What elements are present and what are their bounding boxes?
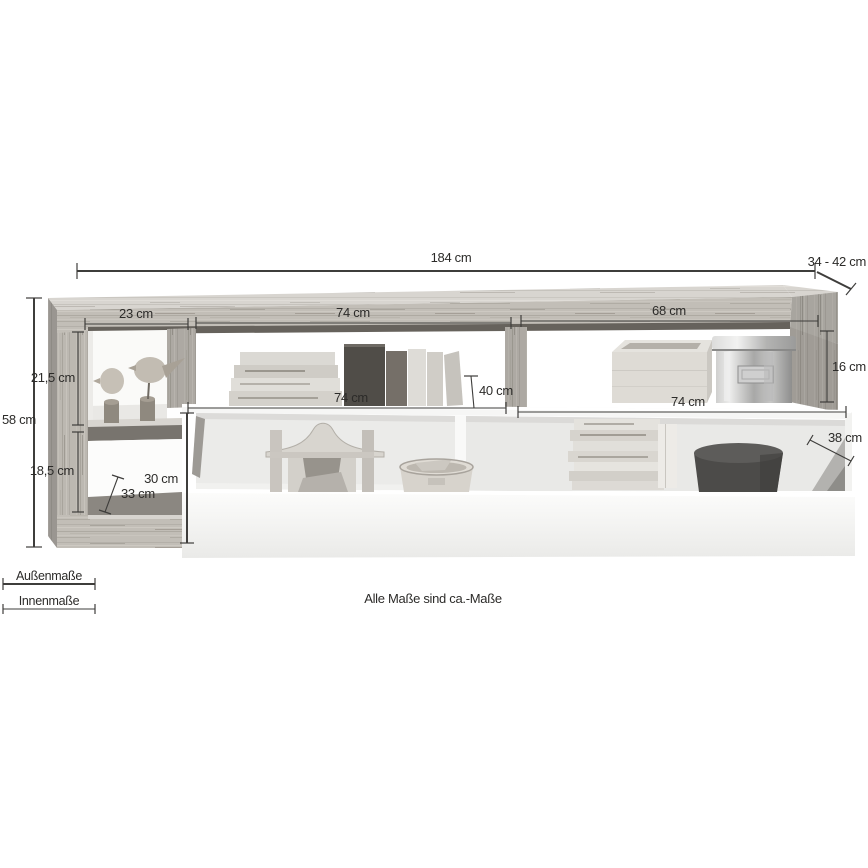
dim-depth-range: 34 - 42 cm bbox=[808, 254, 866, 295]
dim-label-upper-right-height: 16 cm bbox=[832, 359, 866, 374]
diagram-svg: 184 cm 34 - 42 cm 58 cm 23 cm 74 cm bbox=[0, 0, 868, 868]
dim-label-total-height: 58 cm bbox=[2, 412, 36, 427]
legend-inner-label: Innenmaße bbox=[19, 594, 80, 608]
dim-total-height: 58 cm bbox=[2, 298, 42, 547]
dim-label-right-depth: 38 cm bbox=[828, 430, 862, 445]
furniture-illustration bbox=[48, 285, 855, 558]
dim-label-upper-right-width: 68 cm bbox=[652, 303, 686, 318]
bottom-plank bbox=[57, 515, 182, 548]
dim-label-shelf-depth: 40 cm bbox=[479, 383, 513, 398]
dim-label-lowboard-right-width: 74 cm bbox=[671, 394, 705, 409]
decor-dark-planter bbox=[694, 443, 783, 492]
dim-label-lower-left-depth: 33 cm bbox=[121, 486, 155, 501]
dim-label-body-height: 30 cm bbox=[144, 471, 178, 486]
dim-upper-right-height: 16 cm bbox=[820, 331, 866, 402]
decor-basket bbox=[400, 459, 473, 492]
dim-label-upper-left-width: 23 cm bbox=[119, 306, 153, 321]
approx-dimensions-note: Alle Maße sind ca.-Maße bbox=[364, 591, 502, 606]
left-shelf-front bbox=[88, 425, 182, 441]
decor-books-lowboard bbox=[568, 419, 677, 490]
dim-label-total-width: 184 cm bbox=[431, 250, 472, 265]
dim-label-upper-left-height: 21,5 cm bbox=[31, 370, 75, 385]
lowboard-front-flap bbox=[182, 489, 855, 558]
legend-outer-label: Außenmaße bbox=[16, 569, 82, 583]
dim-label-upper-middle-width: 74 cm bbox=[336, 305, 370, 320]
legend: Außenmaße Innenmaße bbox=[3, 569, 95, 614]
product-dimension-diagram: 184 cm 34 - 42 cm 58 cm 23 cm 74 cm bbox=[0, 0, 868, 868]
dim-label-lowboard-left-width: 74 cm bbox=[334, 390, 368, 405]
dim-label-depth-range: 34 - 42 cm bbox=[808, 254, 866, 269]
decor-metal-box bbox=[712, 336, 796, 403]
dim-label-lower-left-height: 18,5 cm bbox=[30, 463, 74, 478]
left-column bbox=[57, 331, 88, 515]
dim-total-width: 184 cm bbox=[77, 250, 815, 279]
